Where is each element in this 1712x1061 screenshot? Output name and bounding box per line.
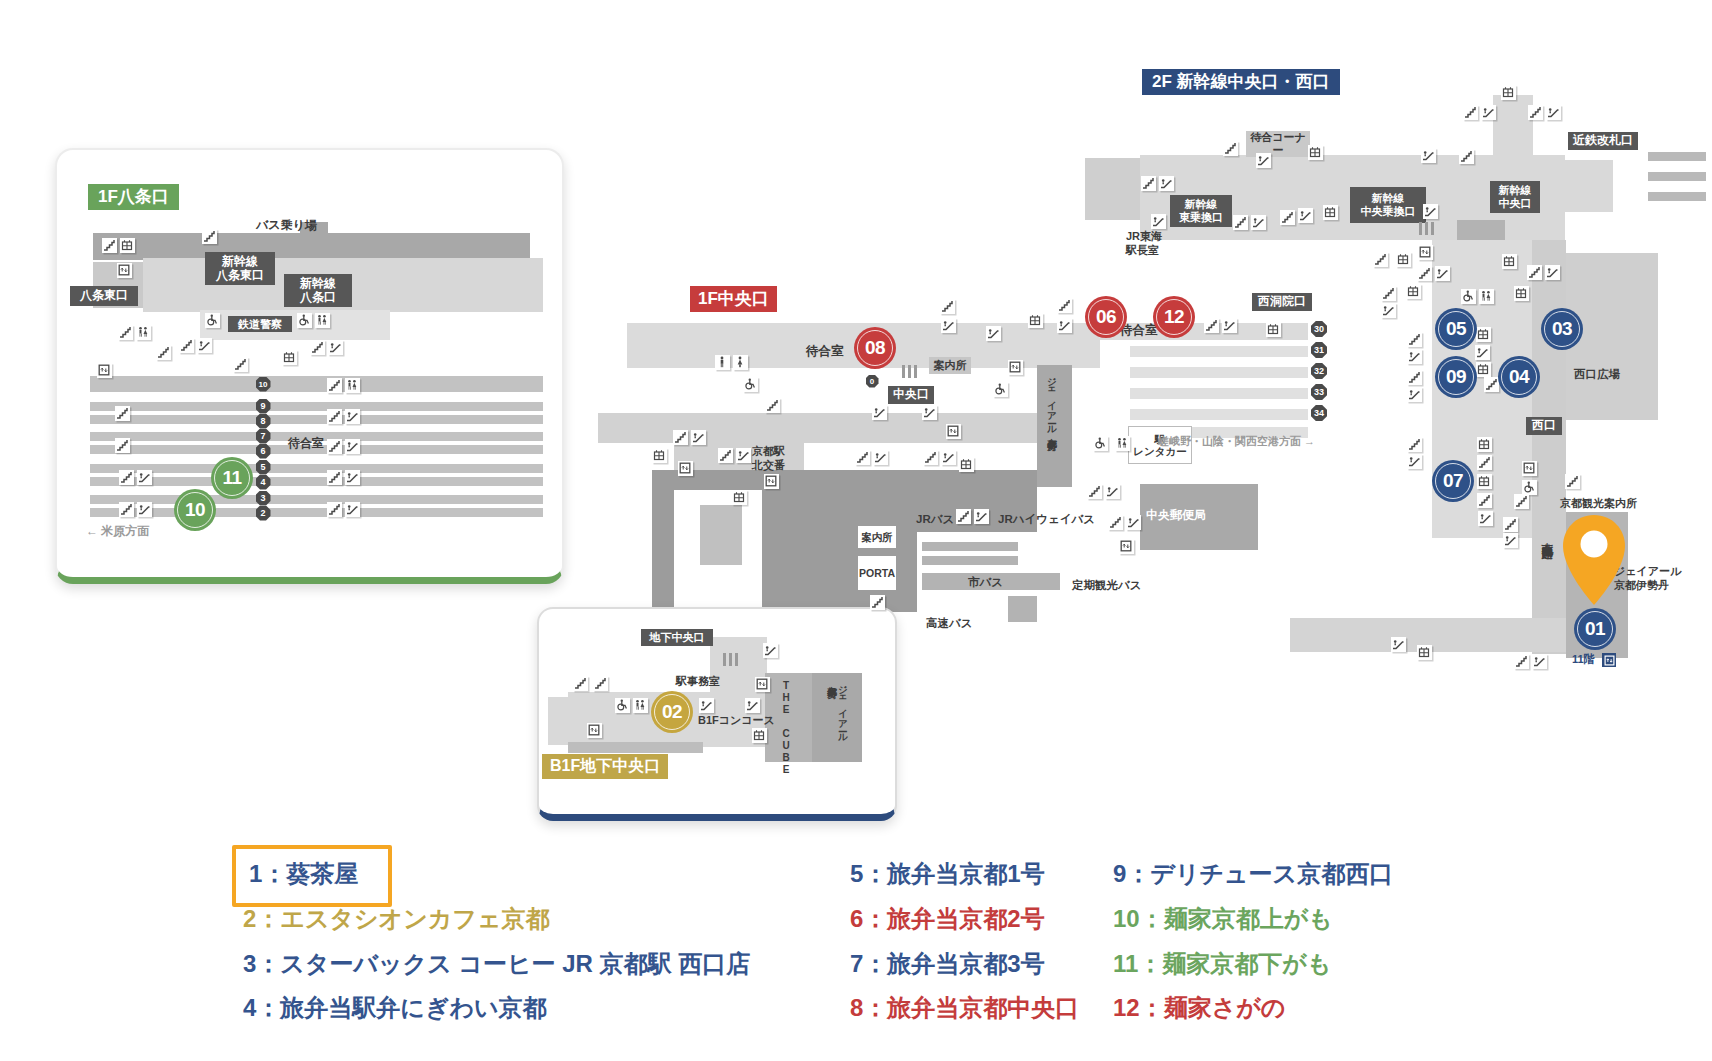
male-icon xyxy=(715,355,730,370)
esc-icon xyxy=(1298,208,1313,223)
esc-icon xyxy=(1057,318,1072,333)
stairs-icon xyxy=(1565,474,1580,489)
legend-item-7[interactable]: 7：旅弁当京都3号 xyxy=(850,948,1045,980)
platform-badge-34: 34 xyxy=(1311,405,1327,421)
esc-icon xyxy=(345,409,360,424)
map-block xyxy=(93,233,530,260)
elev-icon xyxy=(587,723,602,738)
wc-icon xyxy=(743,377,758,392)
esc-icon xyxy=(137,502,152,517)
map-label-chip: 新幹線 八条東口 xyxy=(205,252,275,285)
map-text: 11階 xyxy=(1572,653,1595,667)
locker-icon xyxy=(1308,145,1323,160)
marker-09[interactable]: 09 xyxy=(1435,356,1477,398)
locker-icon xyxy=(959,457,974,472)
floor-title-2f-shinkansen: 2F 新幹線中央口・西口 xyxy=(1142,69,1340,95)
platform-badge-0: 0 xyxy=(866,375,879,388)
map-text: 待合室 xyxy=(806,344,844,360)
toilet-icon xyxy=(136,325,151,340)
stairs-icon xyxy=(1087,484,1102,499)
esc-icon xyxy=(1435,266,1450,281)
stairs-icon xyxy=(1407,332,1422,347)
stairs-icon xyxy=(115,406,130,421)
map-label-chip: PORTA xyxy=(858,556,896,590)
map-text: 市バス xyxy=(968,575,1003,589)
esc-icon xyxy=(1151,214,1166,229)
map-label-chip: 案内所 xyxy=(858,526,896,548)
map-block xyxy=(1130,367,1308,378)
legend-item-10[interactable]: 10：麺家京都上がも xyxy=(1113,903,1333,935)
stairs-icon xyxy=(1484,377,1499,392)
map-label-chip: 案内所 xyxy=(929,357,971,374)
toilet-icon xyxy=(1479,289,1494,304)
stairs-icon xyxy=(765,398,780,413)
map-block xyxy=(700,505,742,565)
stairs-icon xyxy=(1463,105,1478,120)
esc-icon xyxy=(1381,303,1396,318)
esc-icon xyxy=(1546,105,1561,120)
map-block xyxy=(922,542,1018,551)
map-label-chip: 西洞院口 xyxy=(1252,293,1312,311)
stairs-icon xyxy=(1514,654,1529,669)
marker-05[interactable]: 05 xyxy=(1435,308,1477,350)
map-block xyxy=(1130,409,1308,420)
wc-icon xyxy=(1522,480,1537,495)
stairs-icon xyxy=(1528,105,1543,120)
esc-icon xyxy=(745,698,760,713)
map-text: 待合室 xyxy=(1120,323,1158,339)
locker-icon xyxy=(1502,254,1517,269)
stairs-icon xyxy=(1373,252,1388,267)
stairs-icon xyxy=(855,450,870,465)
wc-icon xyxy=(1093,436,1108,451)
esc-icon xyxy=(1105,484,1120,499)
esc-icon xyxy=(345,439,360,454)
legend-item-11[interactable]: 11：麺家京都下がも xyxy=(1113,948,1332,980)
marker-12[interactable]: 12 xyxy=(1153,296,1195,338)
platform-badge-6: 6 xyxy=(256,444,271,459)
stairs-icon xyxy=(1407,437,1422,452)
elevator-11f-icon xyxy=(1602,653,1616,667)
stairs-icon xyxy=(327,470,342,485)
map-text: JRバス xyxy=(916,512,954,526)
floor-title-1f-chuo: 1F中央口 xyxy=(690,286,777,312)
esc-icon xyxy=(763,643,778,658)
esc-icon xyxy=(1545,265,1560,280)
map-text: 西口広場 xyxy=(1574,367,1620,381)
stairs-icon xyxy=(327,409,342,424)
map-block xyxy=(90,402,543,411)
map-text: JRハイウェイバス xyxy=(998,512,1095,526)
map-block xyxy=(598,413,1037,443)
map-block xyxy=(1130,346,1308,357)
wc-icon xyxy=(993,382,1008,397)
legend-item-2[interactable]: 2：エスタシオンカフェ京都 xyxy=(243,903,549,935)
stairs-icon xyxy=(179,338,194,353)
stairs-icon xyxy=(1223,141,1238,156)
locker-icon xyxy=(1028,313,1043,328)
esc-icon xyxy=(1421,148,1436,163)
marker-11[interactable]: 11 xyxy=(211,457,253,499)
floor-title-b1f: B1F地下中央口 xyxy=(542,754,668,779)
map-block xyxy=(1565,160,1613,212)
elev-icon xyxy=(755,677,770,692)
elev-icon xyxy=(117,263,132,278)
map-label-chip: 西口 xyxy=(1526,417,1562,435)
map-label-chip: 地下中央口 xyxy=(641,629,713,646)
esc-icon xyxy=(1126,515,1141,530)
floor-title-1f-hachijo: 1F八条口 xyxy=(88,184,179,210)
platform-badge-30: 30 xyxy=(1311,321,1327,337)
legend-item-1[interactable]: 1：葵茶屋 xyxy=(249,858,358,890)
esc-icon xyxy=(691,430,706,445)
legend-item-6[interactable]: 6：旅弁当京都2号 xyxy=(850,903,1045,935)
stairs-icon xyxy=(870,595,885,610)
stairs-icon xyxy=(1280,210,1295,225)
legend-item-12[interactable]: 12：麺家さがの xyxy=(1113,992,1285,1024)
legend-item-5[interactable]: 5：旅弁当京都1号 xyxy=(850,858,1045,890)
stairs-icon xyxy=(1527,265,1542,280)
esc-icon xyxy=(1407,454,1422,469)
locker-icon xyxy=(732,490,747,505)
map-text: THE CUBE xyxy=(780,680,792,776)
esc-icon xyxy=(1532,654,1547,669)
map-block xyxy=(90,464,543,473)
stairs-icon xyxy=(673,430,688,445)
map-label-chip: 鉄道警察 xyxy=(228,316,292,332)
stairs-icon xyxy=(156,345,171,360)
platform-badge-4: 4 xyxy=(256,475,271,490)
platform-badge-2: 2 xyxy=(256,506,271,521)
legend-item-9[interactable]: 9：デリチュース京都西口 xyxy=(1113,858,1393,890)
locker-icon xyxy=(1501,85,1516,100)
stairs-icon xyxy=(327,378,342,393)
marker-08[interactable]: 08 xyxy=(854,327,896,369)
map-block xyxy=(1008,596,1037,622)
stairs-icon xyxy=(1459,149,1474,164)
locker-icon xyxy=(752,728,767,743)
map-text: 高速バス xyxy=(926,616,973,630)
stairs-icon xyxy=(115,438,130,453)
stairs-icon xyxy=(1108,515,1123,530)
map-label-chip: 新幹線 中央乗換口 xyxy=(1350,187,1426,223)
legend-item-4[interactable]: 4：旅弁当駅弁にぎわい京都 xyxy=(243,992,547,1024)
stairs-icon xyxy=(1417,266,1432,281)
locker-icon xyxy=(1477,474,1492,489)
map-block xyxy=(1648,172,1706,181)
map-text: 京都駅 北交番 xyxy=(752,445,785,473)
map-block xyxy=(1648,192,1706,201)
map-text: ジェイアール京都伊勢丹 xyxy=(1046,370,1057,435)
map-block xyxy=(90,495,543,504)
marker-03[interactable]: 03 xyxy=(1541,308,1583,350)
stairs-icon xyxy=(118,325,133,340)
esc-icon xyxy=(1407,349,1422,364)
hachijo-inset-card xyxy=(55,148,564,584)
elev-icon xyxy=(1418,245,1433,260)
stairs-icon xyxy=(102,238,117,253)
locker-icon xyxy=(1476,327,1491,342)
esc-icon xyxy=(1222,318,1237,333)
locker-icon xyxy=(1406,284,1421,299)
locker-icon xyxy=(1266,322,1281,337)
map-text: 待合室 xyxy=(288,436,324,451)
map-block xyxy=(90,376,543,392)
stairs-icon xyxy=(233,357,248,372)
esc-icon xyxy=(941,450,956,465)
map-text: B1Fコンコース xyxy=(698,714,775,728)
map-text: JR東海 駅長室 xyxy=(1126,230,1162,258)
map-label-chip: 新幹線 東乗換口 xyxy=(1170,195,1232,227)
marker-02[interactable]: 02 xyxy=(651,691,693,733)
stairs-icon xyxy=(327,502,342,517)
stairs-icon xyxy=(1233,215,1248,230)
locker-icon xyxy=(1476,362,1491,377)
map-text: 定期観光バス xyxy=(1072,578,1142,592)
stairs-icon xyxy=(1204,318,1219,333)
esc-icon xyxy=(922,405,937,420)
esc-icon xyxy=(974,509,989,524)
pin-icon xyxy=(1561,513,1627,607)
stairs-icon xyxy=(593,676,608,691)
map-block xyxy=(1648,152,1706,161)
elev-icon xyxy=(1119,539,1134,554)
map-text: 嵯峨野・山陰・関西空港方面 → xyxy=(1158,435,1315,449)
marker-01[interactable]: 01 xyxy=(1574,608,1616,650)
esc-icon xyxy=(345,502,360,517)
map-text: バス乗り場 xyxy=(256,218,317,233)
marker-04[interactable]: 04 xyxy=(1498,356,1540,398)
wc-icon xyxy=(615,698,630,713)
esc-icon xyxy=(345,470,360,485)
esc-icon xyxy=(1423,204,1438,219)
platform-badge-8: 8 xyxy=(256,414,271,429)
map-label-chip: 八条東口 xyxy=(70,286,138,306)
esc-icon xyxy=(1391,637,1406,652)
map-text: 京都観光案内所 xyxy=(1560,497,1637,511)
locker-icon xyxy=(652,448,667,463)
stairs-icon xyxy=(1477,493,1492,508)
map-block xyxy=(90,508,543,517)
elev-icon xyxy=(764,474,779,489)
platform-badge-9: 9 xyxy=(256,399,271,414)
stairs-icon xyxy=(956,509,971,524)
locker-icon xyxy=(1477,437,1492,452)
map-block xyxy=(922,556,1018,565)
platform-badge-5: 5 xyxy=(256,460,271,475)
esc-icon xyxy=(1503,533,1518,548)
stairs-icon xyxy=(1477,455,1492,470)
elev-icon xyxy=(678,461,693,476)
map-block xyxy=(90,477,543,486)
location-pin[interactable] xyxy=(1561,513,1627,611)
esc-icon xyxy=(1478,511,1493,526)
stairs-icon xyxy=(327,439,342,454)
esc-icon xyxy=(1481,105,1496,120)
stairs-icon xyxy=(1141,176,1156,191)
esc-icon xyxy=(328,340,343,355)
esc-icon xyxy=(137,470,152,485)
locker-icon xyxy=(1323,205,1338,220)
esc-icon xyxy=(736,448,751,463)
platform-badge-3: 3 xyxy=(256,491,271,506)
ticket-gates-icon xyxy=(902,365,917,378)
platform-badge-32: 32 xyxy=(1311,363,1327,379)
stairs-icon xyxy=(119,502,134,517)
map-text: ジェイアール 京都伊勢丹 xyxy=(826,678,848,738)
esc-icon xyxy=(1407,387,1422,402)
legend-item-3[interactable]: 3：スターバックス コーヒー JR 京都駅 西口店 xyxy=(243,948,750,980)
stairs-icon xyxy=(1381,286,1396,301)
esc-icon xyxy=(1251,215,1266,230)
stairs-icon xyxy=(310,340,325,355)
wc-icon xyxy=(297,313,312,328)
locker-icon xyxy=(1396,252,1411,267)
locker-icon xyxy=(1514,286,1529,301)
legend-item-8[interactable]: 8：旅弁当京都中央口 xyxy=(850,992,1079,1024)
platform-badge-31: 31 xyxy=(1311,342,1327,358)
stairs-icon xyxy=(1514,494,1529,509)
map-text: 駅事務室 xyxy=(676,675,720,689)
esc-icon xyxy=(986,326,1001,341)
stairs-icon xyxy=(1503,517,1518,532)
esc-icon xyxy=(1159,176,1174,191)
ticket-gates-icon xyxy=(723,653,738,666)
locker-icon xyxy=(120,238,135,253)
wc-icon xyxy=(1461,289,1476,304)
toilet-icon xyxy=(345,378,360,393)
platform-badge-33: 33 xyxy=(1311,384,1327,400)
map-label-chip: 中央口 xyxy=(888,386,934,404)
esc-icon xyxy=(197,338,212,353)
esc-icon xyxy=(941,318,956,333)
toilet-icon xyxy=(1115,436,1130,451)
locker-icon xyxy=(1417,645,1432,660)
stairs-icon xyxy=(202,229,217,244)
esc-icon xyxy=(1256,153,1271,168)
map-block xyxy=(627,323,690,368)
stairs-icon xyxy=(573,676,588,691)
elev-icon xyxy=(1522,461,1537,476)
stairs-icon xyxy=(119,470,134,485)
esc-icon xyxy=(873,450,888,465)
map-block xyxy=(90,415,543,424)
ticket-gates-icon xyxy=(1419,222,1434,235)
stairs-icon xyxy=(1407,370,1422,385)
locker-icon xyxy=(282,350,297,365)
wc-icon xyxy=(205,313,220,328)
marker-06[interactable]: 06 xyxy=(1085,296,1127,338)
stairs-icon xyxy=(718,448,733,463)
map-block xyxy=(548,697,568,745)
map-block xyxy=(1085,158,1140,220)
platform-badge-7: 7 xyxy=(256,429,271,444)
map-text: 南北自由通路 xyxy=(1540,534,1553,540)
map-block xyxy=(1130,388,1308,399)
marker-10[interactable]: 10 xyxy=(174,489,216,531)
toilet-icon xyxy=(315,313,330,328)
map-text: 中央郵便局 xyxy=(1146,508,1206,523)
platform-badge-10: 10 xyxy=(256,377,271,392)
elev-icon xyxy=(1008,360,1023,375)
map-label-chip: 近鉄改札口 xyxy=(1568,132,1638,150)
toilet-icon xyxy=(633,698,648,713)
map-text: ← 米原方面 xyxy=(86,524,149,539)
elev-icon xyxy=(97,363,112,378)
map-label-chip: 新幹線 八条口 xyxy=(284,274,352,307)
stairs-icon xyxy=(940,299,955,314)
elev-icon xyxy=(946,424,961,439)
female-icon xyxy=(733,355,748,370)
map-block xyxy=(568,742,703,753)
esc-icon xyxy=(699,698,714,713)
stairs-icon xyxy=(1057,298,1072,313)
esc-icon xyxy=(1475,345,1490,360)
stairs-icon xyxy=(923,450,938,465)
kyoto-station-map: 1F八条口 1F中央口 2F 新幹線中央口・西口 B1F地下中央口 1：葵茶屋2… xyxy=(0,0,1712,1061)
map-label-chip: 新幹線 中央口 xyxy=(1490,181,1540,213)
marker-07[interactable]: 07 xyxy=(1432,460,1474,502)
esc-icon xyxy=(872,405,887,420)
